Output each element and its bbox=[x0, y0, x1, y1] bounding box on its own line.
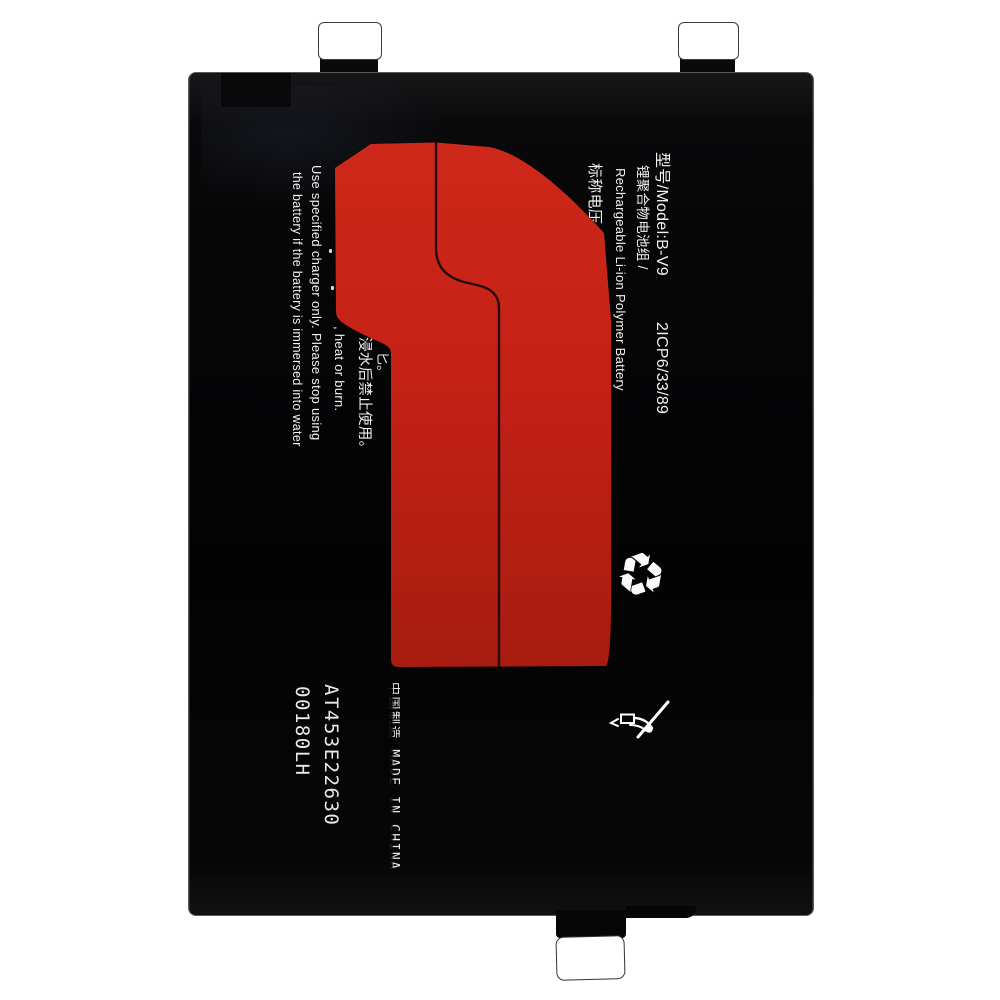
label-fragment-mid: 匕。 bbox=[376, 352, 389, 379]
covered-text-dot bbox=[331, 286, 334, 290]
body-dark-patch bbox=[221, 73, 291, 107]
top-right-terminal-tab bbox=[678, 22, 739, 60]
label-warning-line1: Use specified charger only. Please stop … bbox=[310, 165, 323, 441]
covered-text-dot bbox=[329, 249, 332, 253]
top-left-terminal-tab bbox=[318, 22, 382, 60]
label-model: 型号/Model:B-V9 bbox=[653, 152, 669, 276]
label-warning-line2: the battery if the battery is immersed i… bbox=[291, 172, 304, 447]
label-type-cn: 锂聚合物电池组 / bbox=[636, 165, 650, 270]
battery-body bbox=[188, 72, 814, 916]
bottom-right-flap bbox=[626, 906, 696, 918]
label-made-in: 中国制造 MADE IN CHINA bbox=[387, 682, 400, 871]
body-bottom-sheen bbox=[189, 861, 813, 915]
bottom-terminal-tab bbox=[555, 935, 625, 981]
label-batch-code2: 00180LH bbox=[292, 686, 311, 777]
battery-product-photo: 型号/Model:B-V9 2ICP6/33/89 锂聚合物电池组 / Rech… bbox=[0, 0, 1000, 1000]
label-voltage: 标称电压 bbox=[587, 163, 602, 224]
label-fragment-top: 匕。 bbox=[373, 146, 384, 169]
label-type-en: Rechargeable Li-ion Polymer Battery bbox=[614, 168, 627, 391]
bottom-tab-connector bbox=[556, 910, 626, 938]
label-warning-cn: 浸水后禁止使用。 bbox=[357, 337, 372, 455]
do-not-pry-icon bbox=[605, 698, 675, 742]
label-batch-code: AT453E22630 bbox=[321, 684, 340, 826]
recycle-icon: ♻ bbox=[606, 540, 674, 608]
label-cell-spec: 2ICP6/33/89 bbox=[653, 322, 669, 414]
label-warning-en-fragment: , heat or burn. bbox=[333, 326, 346, 411]
